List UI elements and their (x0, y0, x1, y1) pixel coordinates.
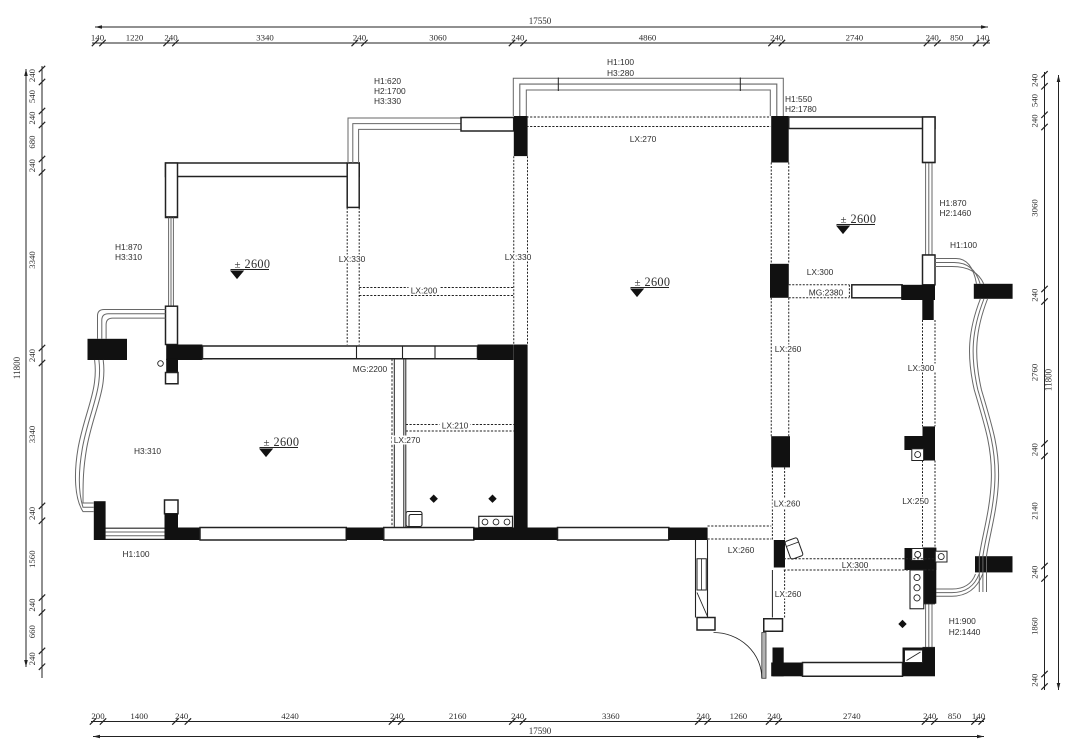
svg-text:240: 240 (926, 33, 940, 43)
svg-text:2600: 2600 (245, 257, 271, 271)
svg-text:LX:270: LX:270 (630, 134, 657, 144)
svg-text:850: 850 (948, 711, 962, 721)
svg-text:MG:2380: MG:2380 (809, 288, 844, 298)
svg-text:2600: 2600 (274, 435, 300, 449)
svg-text:3060: 3060 (429, 33, 447, 43)
svg-text:LX:210: LX:210 (442, 421, 469, 431)
svg-text:240: 240 (27, 598, 37, 612)
svg-text:LX:330: LX:330 (505, 252, 532, 262)
svg-text:1400: 1400 (130, 711, 148, 721)
svg-text:H1:900: H1:900 (949, 616, 976, 626)
svg-text:H3:310: H3:310 (115, 252, 142, 262)
svg-text:H1:870: H1:870 (115, 242, 142, 252)
svg-text:H1:100: H1:100 (607, 57, 634, 67)
svg-text:H1:550: H1:550 (785, 94, 812, 104)
svg-text:240: 240 (27, 506, 37, 520)
svg-text:3340: 3340 (256, 33, 274, 43)
svg-text:H2:1780: H2:1780 (785, 104, 817, 114)
svg-text:LX:200: LX:200 (411, 286, 438, 296)
svg-text:240: 240 (175, 711, 189, 721)
svg-text:3340: 3340 (27, 251, 37, 269)
svg-text:240: 240 (1030, 114, 1040, 128)
svg-text:2600: 2600 (645, 275, 671, 289)
svg-text:3360: 3360 (602, 711, 620, 721)
svg-text:140: 140 (91, 33, 105, 43)
svg-text:240: 240 (27, 68, 37, 82)
svg-text:LX:260: LX:260 (775, 344, 802, 354)
svg-text:4860: 4860 (639, 33, 657, 43)
svg-text:H3:310: H3:310 (134, 446, 161, 456)
svg-text:2600: 2600 (851, 212, 877, 226)
svg-text:240: 240 (1030, 288, 1040, 302)
svg-text:LX:300: LX:300 (908, 363, 935, 373)
svg-text:540: 540 (27, 89, 37, 103)
svg-text:240: 240 (27, 348, 37, 362)
svg-text:2740: 2740 (843, 711, 861, 721)
svg-text:240: 240 (164, 33, 178, 43)
svg-text:240: 240 (511, 33, 525, 43)
svg-text:LX:330: LX:330 (339, 254, 366, 264)
svg-text:850: 850 (950, 33, 964, 43)
svg-text:1220: 1220 (126, 33, 144, 43)
svg-text:240: 240 (390, 711, 404, 721)
svg-text:2140: 2140 (1030, 502, 1040, 520)
svg-text:11800: 11800 (1044, 368, 1054, 391)
svg-text:240: 240 (770, 33, 784, 43)
svg-text:240: 240 (27, 159, 37, 173)
svg-text:2740: 2740 (846, 33, 864, 43)
svg-text:4240: 4240 (281, 711, 299, 721)
svg-text:11800: 11800 (12, 356, 22, 379)
svg-text:1260: 1260 (730, 711, 748, 721)
svg-text:240: 240 (1030, 73, 1040, 87)
svg-text:H2:1440: H2:1440 (949, 627, 981, 637)
svg-text:LX:300: LX:300 (807, 267, 834, 277)
svg-text:H2:1700: H2:1700 (374, 86, 406, 96)
svg-text:240: 240 (27, 652, 37, 666)
svg-text:17550: 17550 (529, 16, 552, 26)
svg-text:LX:260: LX:260 (728, 545, 755, 555)
svg-text:H1:100: H1:100 (950, 240, 977, 250)
svg-text:1560: 1560 (27, 550, 37, 568)
svg-text:LX:260: LX:260 (774, 499, 801, 509)
svg-text:LX:300: LX:300 (842, 560, 869, 570)
svg-text:240: 240 (696, 711, 710, 721)
svg-text:H3:280: H3:280 (607, 68, 634, 78)
svg-text:LX:270: LX:270 (394, 435, 421, 445)
svg-text:540: 540 (1030, 93, 1040, 107)
svg-text:H3:330: H3:330 (374, 96, 401, 106)
svg-text:2160: 2160 (449, 711, 467, 721)
svg-text:2760: 2760 (1030, 363, 1040, 381)
svg-text:3060: 3060 (1030, 199, 1040, 217)
svg-text:LX:250: LX:250 (902, 496, 929, 506)
svg-text:240: 240 (1030, 565, 1040, 579)
svg-text:240: 240 (767, 711, 781, 721)
svg-text:240: 240 (353, 33, 367, 43)
svg-text:140: 140 (976, 33, 990, 43)
svg-text:200: 200 (91, 711, 105, 721)
svg-text:240: 240 (27, 111, 37, 125)
svg-text:MG:2200: MG:2200 (353, 364, 388, 374)
svg-text:1860: 1860 (1030, 617, 1040, 635)
svg-text:240: 240 (511, 711, 525, 721)
svg-text:240: 240 (1030, 443, 1040, 457)
svg-text:H1:870: H1:870 (940, 198, 967, 208)
svg-text:H1:620: H1:620 (374, 76, 401, 86)
svg-text:LX:260: LX:260 (775, 589, 802, 599)
svg-text:240: 240 (923, 711, 937, 721)
svg-text:680: 680 (27, 135, 37, 149)
svg-text:H1:100: H1:100 (123, 549, 150, 559)
svg-text:140: 140 (972, 711, 986, 721)
svg-text:H2:1460: H2:1460 (940, 208, 972, 218)
svg-text:660: 660 (27, 625, 37, 639)
svg-text:240: 240 (1030, 673, 1040, 687)
svg-text:3340: 3340 (27, 425, 37, 443)
svg-text:17590: 17590 (529, 726, 552, 736)
